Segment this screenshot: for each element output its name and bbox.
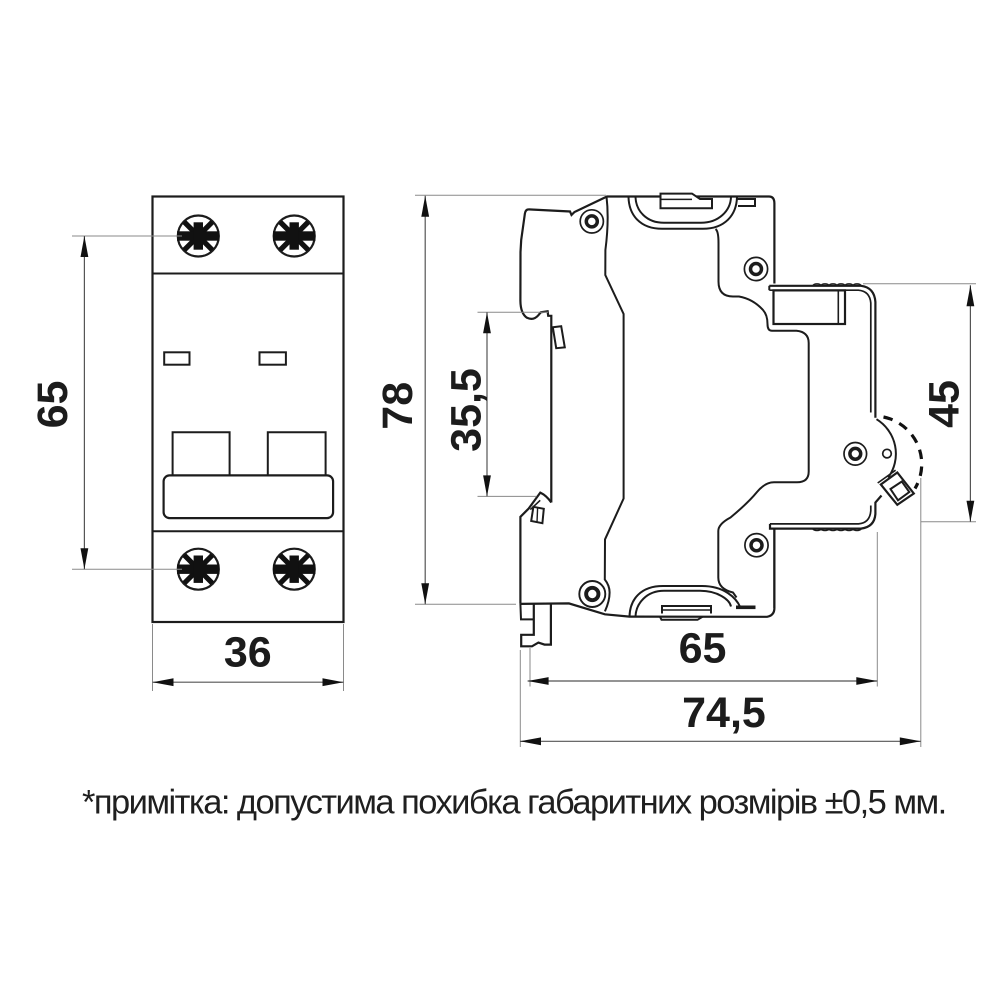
svg-text:78: 78 [374, 382, 422, 430]
svg-text:65: 65 [29, 381, 77, 429]
svg-text:*примітка: допустима похибка г: *примітка: допустима похибка габаритних … [82, 784, 946, 822]
svg-text:65: 65 [679, 625, 727, 673]
svg-text:36: 36 [224, 629, 272, 677]
svg-text:35,5: 35,5 [443, 368, 491, 452]
svg-text:45: 45 [921, 380, 969, 428]
svg-text:74,5: 74,5 [682, 689, 766, 737]
